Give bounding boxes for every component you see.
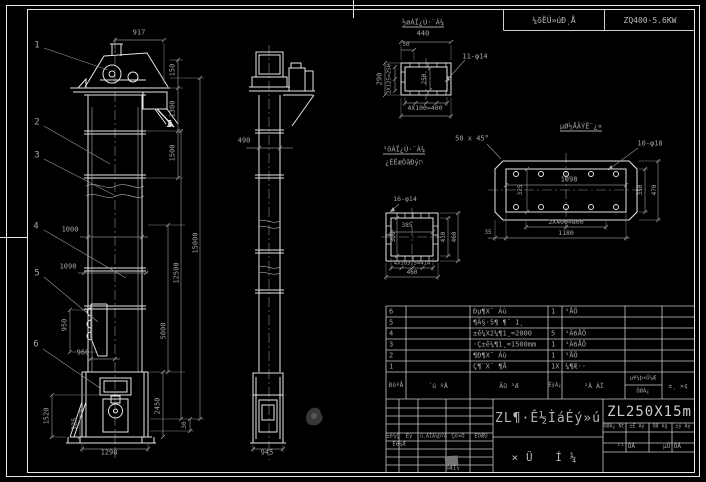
- header-strip-left-cell: ¼õËÙ»úÐͺÅ: [504, 10, 604, 30]
- title-block-model: ZL250X15m: [604, 402, 695, 421]
- bom-cell-material: ¼¶Æ··: [565, 363, 586, 370]
- bom-cell-no: 3: [389, 341, 393, 348]
- bom-cell-qty: 1: [551, 352, 555, 359]
- title-block-sub-title: ×Ü Í¼: [493, 449, 603, 465]
- bom-cell-qty: 1: [551, 341, 555, 348]
- bom-cell-no: 6: [389, 308, 393, 315]
- bom-cell-material: ¹Ä6ÅÖ: [565, 330, 586, 337]
- bom-cell-name: ·Ç±ê¼¶1¸=1500mm: [473, 341, 536, 348]
- bom-cell-no: 2: [389, 352, 393, 359]
- bom-cell-name: ¶Ð¶X¯ Áù: [473, 352, 507, 359]
- bom-cell-qty: 1X: [551, 363, 559, 370]
- bom-cell-material: ¹Ä6ÅÖ: [565, 341, 586, 348]
- bom-cell-material: ¹ÅÖ: [565, 352, 578, 359]
- bom-cell-no: 5: [389, 319, 393, 326]
- bom-cell-qty: 1: [551, 308, 555, 315]
- title-block-main-title: ZL¶·Ê½ÌáÉý»ú: [493, 408, 603, 428]
- bom-cell-qty: 5: [551, 330, 555, 337]
- bom-cell-no: 4: [389, 330, 393, 337]
- cad-drawing-canvas: 1234569171501300150015000125005000245030…: [0, 0, 706, 482]
- bom-cell-name: Ç¶¨X¨ ¶Å: [473, 363, 507, 370]
- bom-cell-name: ¶Ä§·5¶ ¶¨ 1¸: [473, 319, 524, 326]
- bom-cell-material: ¹ÅÖ: [565, 308, 578, 315]
- header-strip-right-cell: ZQ400-5.6KW: [605, 10, 695, 30]
- bom-cell-name: Ðµ¶X¯ Áù: [473, 308, 507, 315]
- bom-cell-name: ±ê¼X2¼¶1¸=2000: [473, 330, 532, 337]
- bom-cell-no: 1: [389, 363, 393, 370]
